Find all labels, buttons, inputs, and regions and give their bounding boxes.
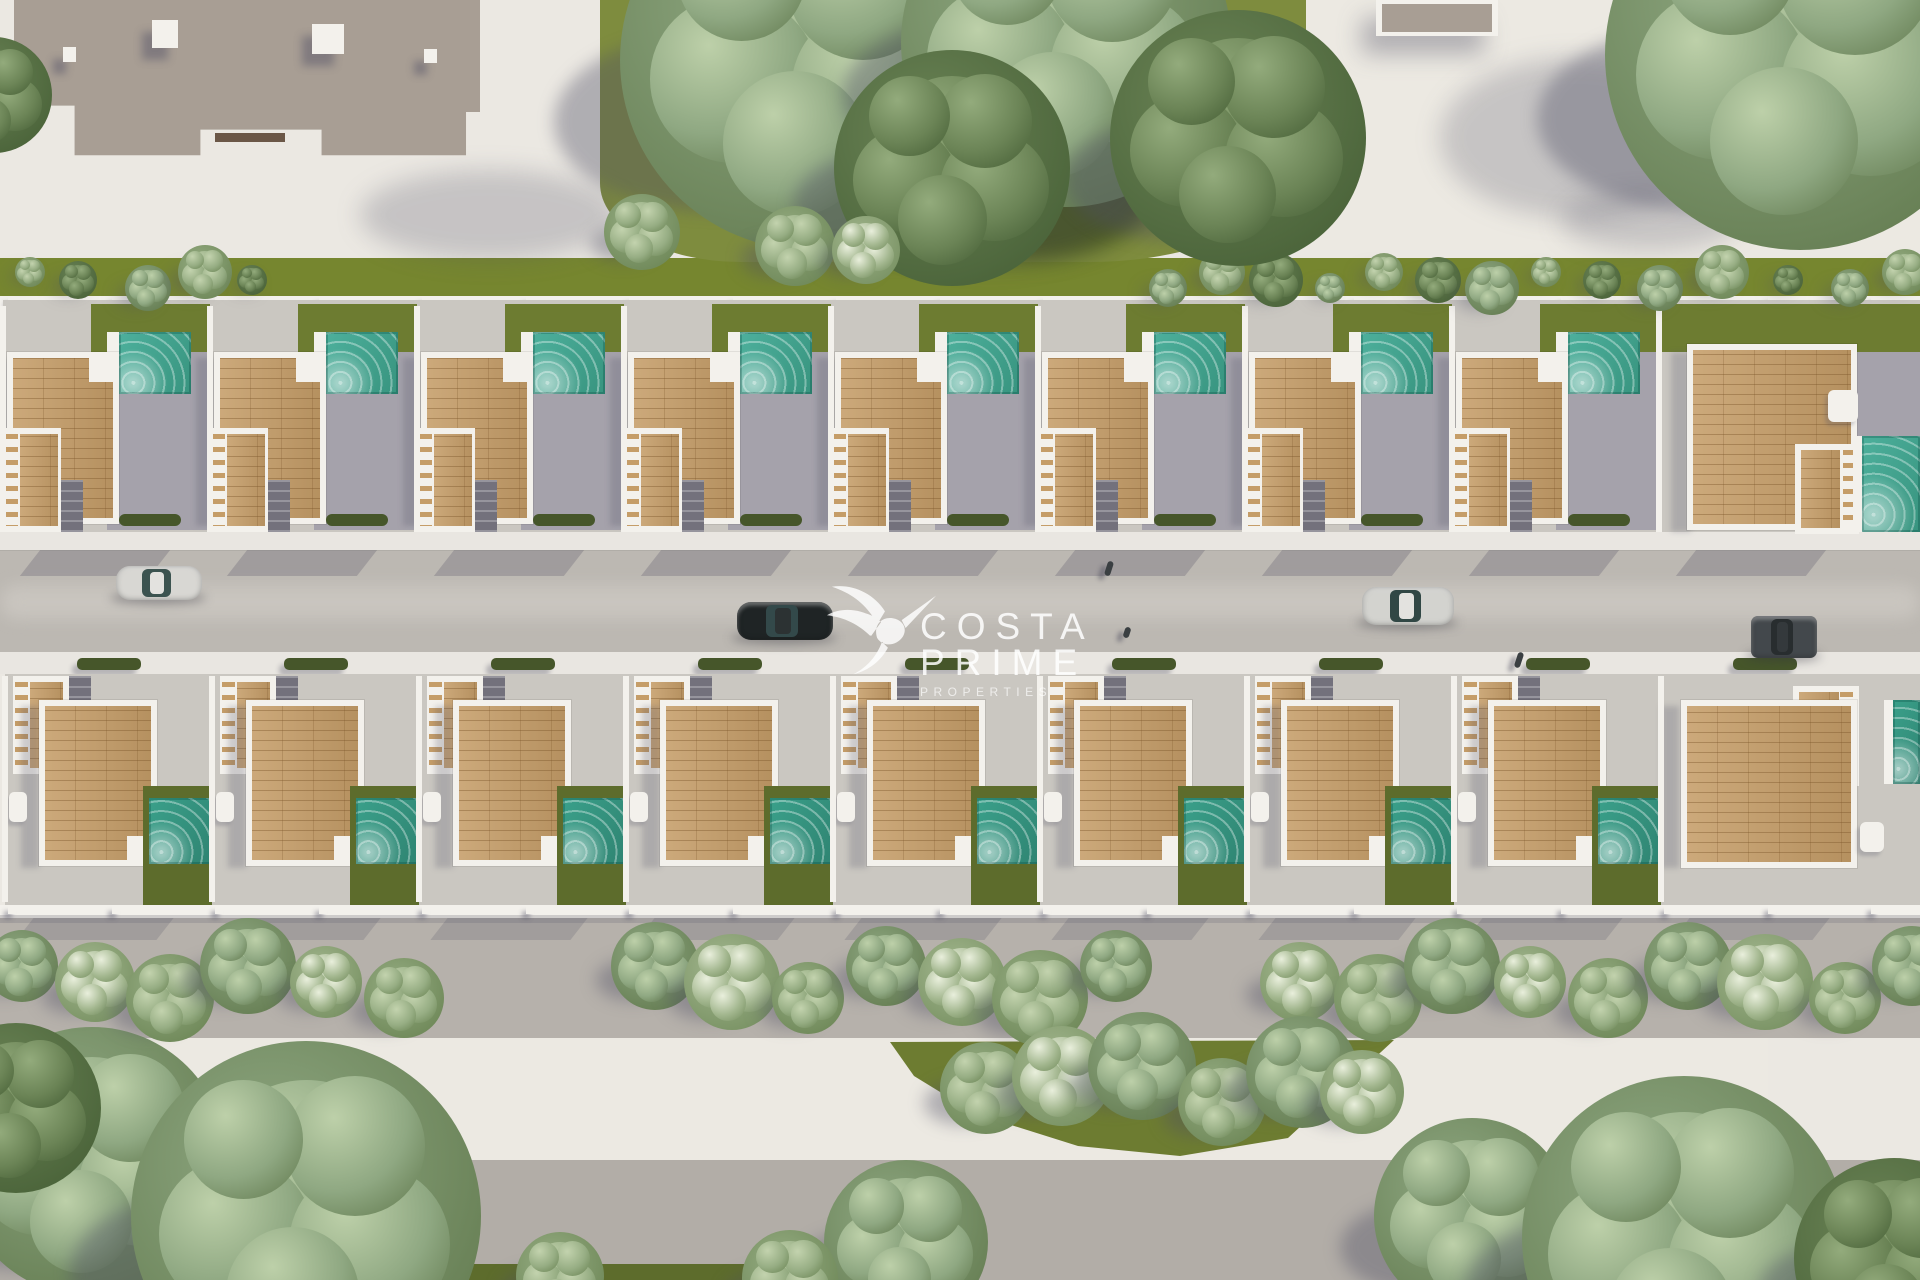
road-edge-shadow (1469, 550, 1619, 576)
building-balcony (215, 133, 285, 142)
villa-divider-wall (1656, 306, 1662, 532)
tree-foliage-blob (1446, 928, 1484, 966)
tree-foliage-blob (1649, 289, 1666, 306)
tree-foliage-blob (1657, 270, 1675, 288)
tree-foliage-blob (1894, 273, 1911, 290)
road-edge-shadow (434, 550, 584, 576)
fence-post (1354, 906, 1362, 914)
villa-divider-wall (414, 306, 420, 532)
tree-foliage-blob (1263, 1028, 1301, 1066)
hedge-bush (1149, 269, 1187, 307)
small-deck-wood (1055, 434, 1093, 526)
tree-foliage-blob (790, 214, 822, 246)
fence-post (940, 906, 948, 914)
tree-foliage-blob (1781, 281, 1792, 292)
villa-divider-wall (621, 306, 627, 532)
tree-foliage-blob (942, 985, 975, 1018)
tree-foliage-blob (868, 968, 898, 998)
tree-foliage-blob (1272, 951, 1299, 978)
deck-shadow (849, 706, 867, 868)
fence-post (422, 906, 430, 914)
tree-foliage-blob (1593, 281, 1607, 295)
patio-table (1458, 792, 1476, 822)
tree-foliage-blob (624, 932, 654, 962)
tree-foliage-blob (1282, 984, 1312, 1014)
sidewalk-planter (1319, 658, 1383, 670)
road-edge-shadow (848, 550, 998, 576)
hedge-bush (1315, 273, 1345, 303)
tree-foliage-blob (726, 944, 764, 982)
hedge-bush (1637, 265, 1683, 311)
pool (1184, 798, 1246, 864)
deck-ladder (212, 434, 225, 526)
tree-foliage-blob (193, 274, 214, 295)
villa-divider-wall (1658, 676, 1664, 902)
pool (1154, 332, 1226, 394)
tree-foliage-blob (896, 1176, 962, 1242)
tree-foliage-blob (1743, 985, 1779, 1021)
tree-foliage-blob (1824, 1180, 1892, 1248)
tree-foliage-blob (842, 223, 865, 246)
tree-foliage-blob (1323, 289, 1334, 300)
tree-foliage-blob (1600, 265, 1615, 280)
deck-stairs (1096, 480, 1118, 532)
tree-foliage-blob (69, 281, 83, 295)
road-edge-shadow (641, 550, 791, 576)
roof-vent (312, 24, 344, 54)
tree-foliage-blob (1104, 1024, 1141, 1061)
watermark-brand-line1: COSTA (920, 610, 1095, 644)
tree (755, 206, 835, 286)
tree-foliage-blob (6, 1040, 74, 1108)
tree-foliage-blob (756, 1241, 789, 1274)
tree-foliage-blob (1668, 969, 1701, 1002)
pool (1391, 798, 1453, 864)
tree-foliage-blob (957, 947, 992, 982)
villa-divider-wall (1037, 676, 1043, 902)
small-deck-wood (227, 434, 265, 526)
tree-foliage-blob (1427, 281, 1444, 298)
deck-shadow (1056, 706, 1074, 868)
pool-ledge (1853, 436, 1862, 532)
tree-foliage-blob (784, 1240, 822, 1278)
tree-foliage-blob (1357, 1058, 1391, 1092)
tree-foliage-blob (1418, 929, 1451, 962)
tree-foliage-blob (67, 951, 94, 978)
tree-foliage-blob (1264, 282, 1285, 303)
pool (563, 798, 625, 864)
tree-foliage-blob (1099, 968, 1126, 995)
deck-stairs (1510, 480, 1532, 532)
small-deck-wood (1262, 434, 1300, 526)
tree-foliage-blob (1841, 289, 1855, 303)
sidewalk-planter (1526, 658, 1590, 670)
tree-foliage-blob (150, 1001, 183, 1034)
tree-foliage-blob (399, 966, 431, 998)
tree-foliage-blob (1435, 262, 1453, 280)
deck-notch (710, 352, 740, 382)
deck-notch (917, 352, 947, 382)
tree-foliage-blob (1223, 36, 1325, 138)
pool (1598, 798, 1660, 864)
pool (1568, 332, 1640, 394)
deck-shadow (435, 706, 453, 868)
pool (1893, 700, 1920, 784)
hedge-bush (1465, 261, 1519, 315)
tree-foliage-blob (184, 1080, 303, 1199)
tree-foliage-blob (1375, 273, 1389, 287)
watermark: COSTA PRIME PROPERTIES (818, 576, 1138, 708)
tree-foliage-blob (1202, 1105, 1235, 1138)
tree-foliage-blob (1571, 1112, 1681, 1222)
lawn-bush (1320, 1050, 1404, 1134)
tree-foliage-blob (791, 1000, 818, 1027)
villa-divider-wall (1035, 306, 1041, 532)
tree-foliage-blob (1902, 254, 1920, 272)
tree-foliage-blob (1683, 931, 1718, 966)
deck-notch (1331, 352, 1361, 382)
tree-foliage-blob (1580, 967, 1607, 994)
tree (1110, 10, 1366, 266)
tree-foliage-blob (1489, 266, 1511, 288)
tree-foliage-blob (1644, 270, 1660, 286)
deck-ladder (1454, 434, 1467, 526)
small-deck-wood (641, 434, 679, 526)
tree-foliage-blob (1159, 289, 1173, 303)
tree-foliage-blob (1759, 944, 1797, 982)
car-roof (1777, 622, 1788, 652)
fence-post (112, 906, 120, 914)
tree-foliage-blob (65, 265, 78, 278)
patio-table (1251, 792, 1269, 822)
fence-post (8, 906, 16, 914)
villa-divider-wall (209, 676, 215, 902)
pool (356, 798, 418, 864)
deck-stairs (889, 480, 911, 532)
sidewalk-top (0, 532, 1920, 550)
villa-divider-wall (1244, 676, 1250, 902)
road-edge-shadow (227, 550, 377, 576)
front-hedge (1361, 514, 1423, 526)
tree-foliage-blob (1136, 1023, 1179, 1066)
tree-foliage-blob (1358, 1001, 1391, 1034)
tree-foliage-blob (245, 281, 256, 292)
hedge-bush (1831, 269, 1869, 307)
tree-foliage-blob (139, 964, 169, 994)
pool (119, 332, 191, 394)
tree-foliage-blob (650, 931, 685, 966)
road-edge-shadow (1055, 550, 1205, 576)
small-deck-wood (20, 434, 58, 526)
hedge-bush (1415, 257, 1461, 303)
tree-foliage-blob (214, 929, 247, 962)
villa-divider-wall (207, 306, 213, 532)
tree-foliage-blob (931, 948, 961, 978)
tree-foliage-blob (376, 967, 403, 994)
villa-divider-wall (0, 306, 6, 532)
tree-foliage-blob (1657, 932, 1687, 962)
deck-notch (503, 352, 533, 382)
tree-foliage-blob (1710, 67, 1858, 215)
pool-ledge (1884, 700, 1893, 784)
tree-foliage-blob (1211, 273, 1228, 290)
tree-foliage-blob (625, 234, 654, 263)
tree-foliage-blob (881, 934, 913, 966)
front-hedge (533, 514, 595, 526)
small-deck-wood (434, 434, 472, 526)
deck-ladder (1247, 434, 1260, 526)
fence-post (526, 906, 534, 914)
villa-divider-wall (828, 306, 834, 532)
deck-ladder (5, 434, 18, 526)
tree-foliage-blob (1403, 1140, 1470, 1207)
sidewalk-planter (77, 658, 141, 670)
pool (533, 332, 605, 394)
tree-foliage-blob (23, 273, 34, 284)
small-deck-wood (848, 434, 886, 526)
tree-foliage-blob (767, 215, 794, 242)
tree-foliage-blob (285, 1076, 425, 1216)
deck-shadow (228, 706, 246, 868)
patio-table (1860, 822, 1884, 852)
watermark-brand-line2: PRIME (920, 645, 1095, 680)
tree-foliage-blob (938, 74, 1032, 168)
fence-post (1147, 906, 1155, 914)
villa-divider-wall (623, 676, 629, 902)
pool (326, 332, 398, 394)
car-roof (150, 572, 164, 594)
villa-divider-wall (416, 676, 422, 902)
deck-stairs (1303, 480, 1325, 532)
tree-foliage-blob (1884, 935, 1911, 962)
deck-shadow (642, 706, 660, 868)
hedge-bush (59, 261, 97, 299)
tree-foliage-blob (90, 950, 122, 982)
tree-foliage-blob (1179, 146, 1276, 243)
deck-ladder (419, 434, 432, 526)
deck-notch (1538, 352, 1568, 382)
deck-notch (89, 352, 119, 382)
tree-foliage-blob (1848, 273, 1863, 288)
deck-ladder (1040, 434, 1053, 526)
deck-stairs (682, 480, 704, 532)
tree-foliage-blob (898, 175, 988, 265)
tree-foliage-blob (1665, 1108, 1795, 1238)
tree-foliage-blob (1889, 254, 1905, 270)
ground-shadow (360, 170, 620, 260)
tree-foliage-blob (698, 945, 731, 978)
walkway-bush (1080, 930, 1152, 1002)
tree-foliage-blob (1422, 262, 1438, 278)
hedge-bush (1531, 257, 1561, 287)
tree-foliage-blob (1333, 1059, 1362, 1088)
tree-foliage-blob (869, 76, 949, 156)
tree-foliage-blob (1837, 273, 1850, 286)
roof-vent (152, 20, 178, 48)
tree-foliage-blob (635, 969, 668, 1002)
walkway-edge-shadow (430, 918, 587, 940)
tree-foliage-blob (1590, 1000, 1620, 1030)
fence-post (1871, 906, 1879, 914)
hedge-bush (237, 265, 267, 295)
tree-foliage-blob (242, 928, 280, 966)
deck-shadow (1263, 706, 1281, 868)
hedge-bush (1583, 261, 1621, 299)
tree-foliage-blob (137, 289, 154, 306)
patio-table (9, 792, 27, 822)
tree-foliage-blob (1371, 257, 1384, 270)
tree-foliage-blob (132, 270, 148, 286)
fence-post (1043, 906, 1051, 914)
hedge-bush (178, 245, 232, 299)
fence-post (1664, 906, 1672, 914)
fence-post (1457, 906, 1465, 914)
fence-post (1768, 906, 1776, 914)
tree-foliage-blob (145, 270, 163, 288)
fence-post (733, 906, 741, 914)
pool (947, 332, 1019, 394)
tree-foliage-blob (850, 252, 876, 278)
small-deck-wood (1469, 434, 1507, 526)
tree-foliage-blob (1828, 1000, 1855, 1027)
deck-ladder (833, 434, 846, 526)
car-roof (775, 608, 790, 634)
tree-foliage-blob (1710, 274, 1731, 295)
front-hedge (740, 514, 802, 526)
tree-foliage-blob (1589, 265, 1602, 278)
road-edge-shadow (1262, 550, 1412, 576)
aerial-site-render: COSTA PRIME PROPERTIES (0, 0, 1920, 1280)
villa-divider-wall (1449, 306, 1455, 532)
patio-table (1044, 792, 1062, 822)
patio-table (837, 792, 855, 822)
pool (1361, 332, 1433, 394)
tree-foliage-blob (1513, 984, 1540, 1011)
deck-shadow (21, 706, 39, 868)
deck-shadow (1470, 706, 1488, 868)
tree-foliage-blob (555, 1241, 590, 1276)
tree-foliage-blob (858, 935, 885, 962)
deck-notch (296, 352, 326, 382)
tree-foliage-blob (862, 223, 889, 250)
tree-foliage-blob (1894, 968, 1920, 998)
hedge-bush (1695, 245, 1749, 299)
patio-table (423, 792, 441, 822)
sidewalk-planter (284, 658, 348, 670)
tree-foliage-blob (77, 984, 107, 1014)
tree-foliage-blob (226, 969, 262, 1005)
tree-foliage-blob (202, 250, 224, 272)
fence-post (836, 906, 844, 914)
deck-notch (1124, 352, 1154, 382)
deck-wood (1687, 706, 1851, 862)
tree-foliage-blob (710, 985, 746, 1021)
front-hedge (326, 514, 388, 526)
front-hedge (119, 514, 181, 526)
fence-post (1561, 906, 1569, 914)
deck-stairs (61, 480, 83, 532)
pool (1862, 436, 1920, 532)
watermark-text: COSTA PRIME PROPERTIES (920, 610, 1095, 699)
sidewalk-planter (698, 658, 762, 670)
fence-post (319, 906, 327, 914)
fence-post (629, 906, 637, 914)
tree-foliage-blob (1155, 273, 1168, 286)
pool (740, 332, 812, 394)
front-hedge (947, 514, 1009, 526)
tree-foliage-blob (1719, 250, 1741, 272)
hedge-bush (1882, 249, 1920, 295)
tree-foliage-blob (386, 1000, 416, 1030)
deck-stairs (475, 480, 497, 532)
watermark-tagline: PROPERTIES (920, 685, 1095, 699)
tree-foliage-blob (637, 202, 667, 232)
patio-table (1828, 390, 1858, 422)
fence-bottom (0, 905, 1920, 915)
sidewalk-planter (491, 658, 555, 670)
walkway-bush (364, 958, 444, 1038)
car-roof (1399, 593, 1414, 619)
hedge-bush (1773, 265, 1803, 295)
small-deck-wood (1801, 450, 1840, 528)
tree-foliage-blob (76, 265, 91, 280)
front-hedge (1154, 514, 1216, 526)
walkway-edge-shadow (1258, 918, 1415, 940)
villa-divider-wall (1242, 306, 1248, 532)
hedge-bush (125, 265, 171, 311)
pool (149, 798, 211, 864)
pool (977, 798, 1039, 864)
tree-foliage-blob (1731, 945, 1764, 978)
tree-foliage-blob (1191, 1068, 1221, 1098)
deck-stairs (268, 480, 290, 532)
patio-table (630, 792, 648, 822)
tree (832, 216, 900, 284)
fence-post (215, 906, 223, 914)
road-edge-shadow (1676, 550, 1826, 576)
fence-post (1250, 906, 1258, 914)
deck-ladder (626, 434, 639, 526)
tree-foliage-blob (1006, 961, 1039, 994)
tree (604, 194, 680, 270)
tree-foliage-blob (1347, 964, 1377, 994)
hedge-bush (1365, 253, 1403, 291)
villa-divider-wall (1451, 676, 1457, 902)
tree-foliage-blob (1539, 273, 1550, 284)
tree-foliage-blob (1273, 258, 1295, 280)
tree-foliage-blob (5, 968, 32, 995)
pool (770, 798, 832, 864)
tree-foliage-blob (777, 248, 807, 278)
patio-table (216, 792, 234, 822)
tree-foliage-blob (1148, 38, 1235, 125)
tree-foliage-blob (1480, 290, 1501, 311)
tree-foliage-blob (1430, 969, 1466, 1005)
hedge-bush (15, 257, 45, 287)
tree-foliage-blob (849, 1178, 905, 1234)
roof-vent (424, 49, 437, 63)
front-hedge (1568, 514, 1630, 526)
tree-foliage-blob (1343, 1095, 1375, 1127)
tree-foliage-blob (1382, 257, 1397, 272)
tree-foliage-blob (1027, 1037, 1061, 1071)
tree-foliage-blob (529, 1242, 559, 1272)
tree-foliage-blob (1117, 1069, 1158, 1110)
tree-foliage-blob (309, 984, 336, 1011)
villa-divider-wall (2, 676, 8, 902)
tree-foliage-blob (1166, 273, 1181, 288)
small-roof-top (1382, 4, 1492, 32)
